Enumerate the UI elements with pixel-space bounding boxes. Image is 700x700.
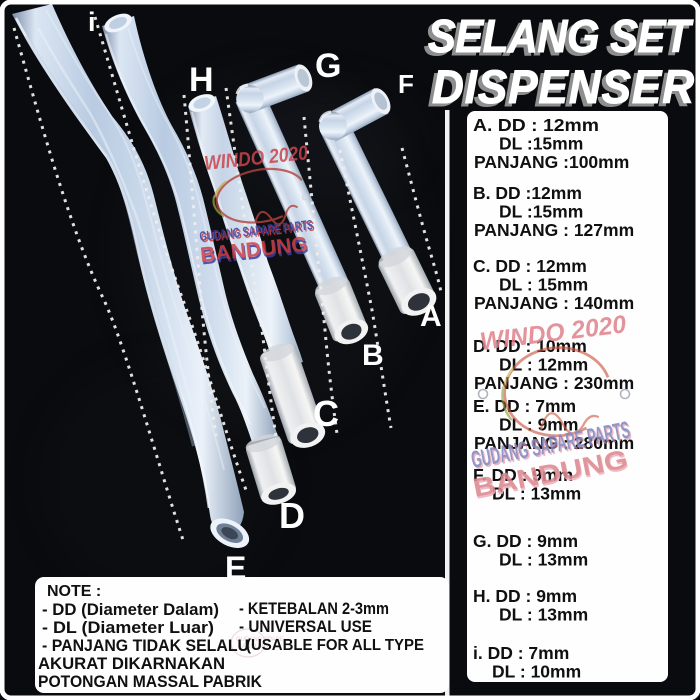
svg-text:PANJANG : 230mm: PANJANG : 230mm <box>474 373 634 393</box>
svg-text:DL : 10mm: DL : 10mm <box>492 662 581 682</box>
svg-text:(USABLE FOR ALL TYPE: (USABLE FOR ALL TYPE <box>246 637 424 654</box>
svg-text:PANJANG :100mm: PANJANG :100mm <box>474 152 629 172</box>
svg-text:DL :15mm: DL :15mm <box>499 202 583 222</box>
svg-text:B. DD :12mm: B. DD :12mm <box>473 183 582 203</box>
svg-text:DISPENSER: DISPENSER <box>432 60 695 113</box>
svg-text:H. DD : 9mm: H. DD : 9mm <box>473 586 577 606</box>
svg-text:G: G <box>315 47 341 85</box>
svg-text:DL : 13mm: DL : 13mm <box>499 605 588 625</box>
svg-text:A. DD : 12mm: A. DD : 12mm <box>473 115 599 135</box>
svg-text:F: F <box>398 69 414 99</box>
svg-text:DL :15mm: DL :15mm <box>499 134 583 154</box>
svg-text:- DD (Diameter Dalam): - DD (Diameter Dalam) <box>42 601 219 619</box>
svg-text:- DL (Diameter Luar): - DL (Diameter Luar) <box>42 619 214 637</box>
svg-text:SELANG SET: SELANG SET <box>428 10 694 62</box>
svg-text:G. DD : 9mm: G. DD : 9mm <box>473 531 578 551</box>
svg-text:B: B <box>362 339 384 372</box>
svg-text:DL : 15mm: DL : 15mm <box>499 275 588 295</box>
svg-text:H: H <box>189 61 214 99</box>
svg-text:PANJANG : 127mm: PANJANG : 127mm <box>474 220 634 240</box>
svg-text:i: i <box>88 7 96 37</box>
svg-text:C. DD : 12mm: C. DD : 12mm <box>473 256 587 276</box>
svg-text:DL : 13mm: DL : 13mm <box>499 550 588 570</box>
svg-text:PANJANG : 140mm: PANJANG : 140mm <box>474 293 634 313</box>
svg-text:NOTE :: NOTE : <box>47 583 101 600</box>
svg-text:- UNIVERSAL USE: - UNIVERSAL USE <box>239 618 372 636</box>
svg-text:- KETEBALAN 2-3mm: - KETEBALAN 2-3mm <box>239 600 389 618</box>
svg-text:C: C <box>313 393 339 434</box>
svg-text:POTONGAN MASSAL PABRIK: POTONGAN MASSAL PABRIK <box>38 673 262 691</box>
svg-text:A: A <box>420 300 442 333</box>
svg-text:- PANJANG TIDAK SELALU: - PANJANG TIDAK SELALU <box>42 637 249 655</box>
svg-text:AKURAT DIKARNAKAN: AKURAT DIKARNAKAN <box>38 655 225 673</box>
svg-text:D: D <box>279 495 305 536</box>
svg-text:E. DD : 7mm: E. DD : 7mm <box>473 396 576 416</box>
svg-text:i. DD : 7mm: i. DD : 7mm <box>473 643 569 663</box>
